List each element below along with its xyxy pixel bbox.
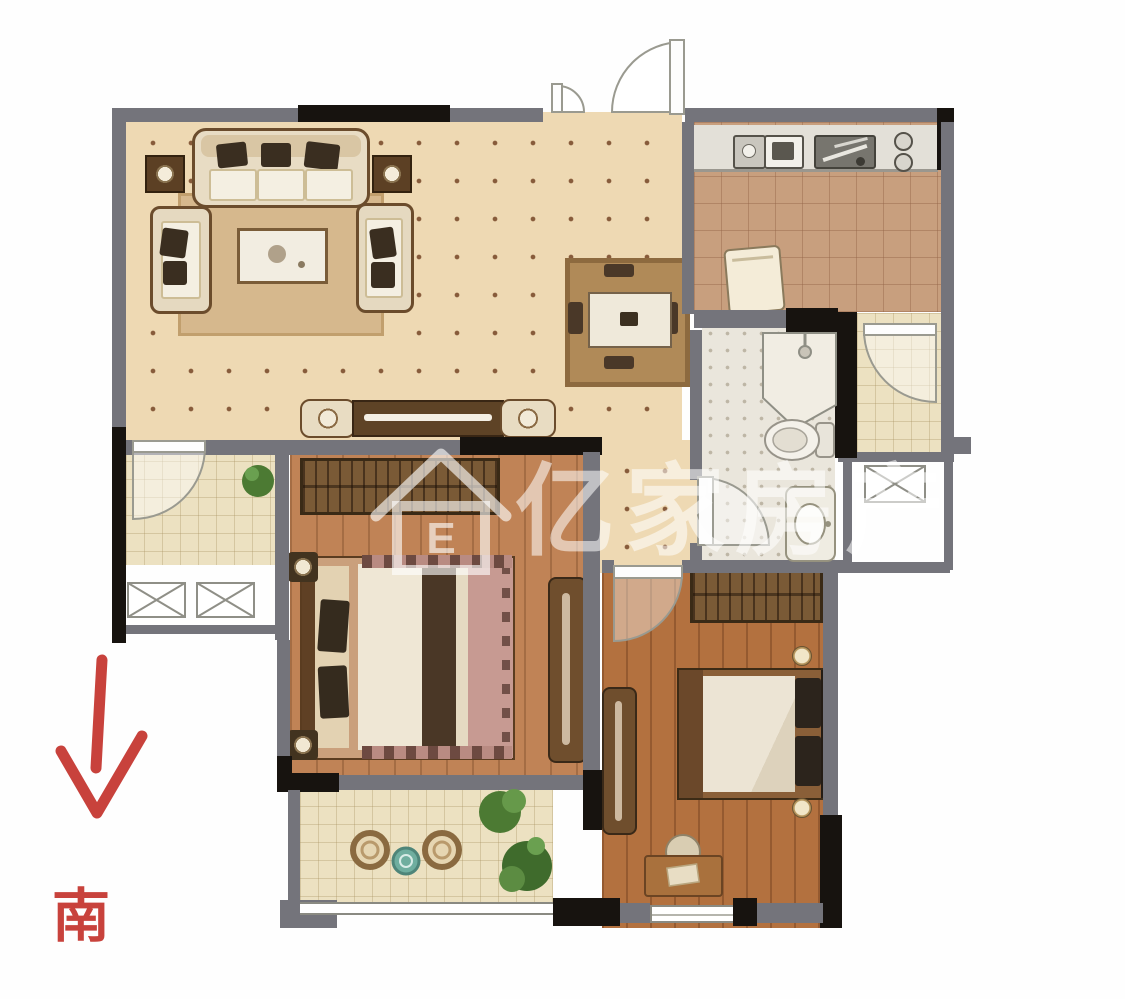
south-arrow-icon	[61, 660, 142, 813]
toilet	[765, 420, 834, 460]
south-label: 南	[52, 888, 110, 946]
watermark-brand-text: 亿家房产	[515, 462, 955, 562]
desk	[645, 856, 722, 896]
entry-balcony-door	[133, 441, 205, 519]
entry-door	[552, 40, 684, 114]
floor-plan-image: E 亿家房产 南	[0, 0, 1125, 999]
house-logo-icon: E	[376, 454, 506, 570]
second-bedroom-door	[614, 566, 682, 641]
balcony-table	[393, 848, 419, 874]
logo-letter: E	[426, 514, 455, 563]
utility-balcony-door	[864, 324, 936, 402]
shower-stall	[763, 333, 836, 428]
